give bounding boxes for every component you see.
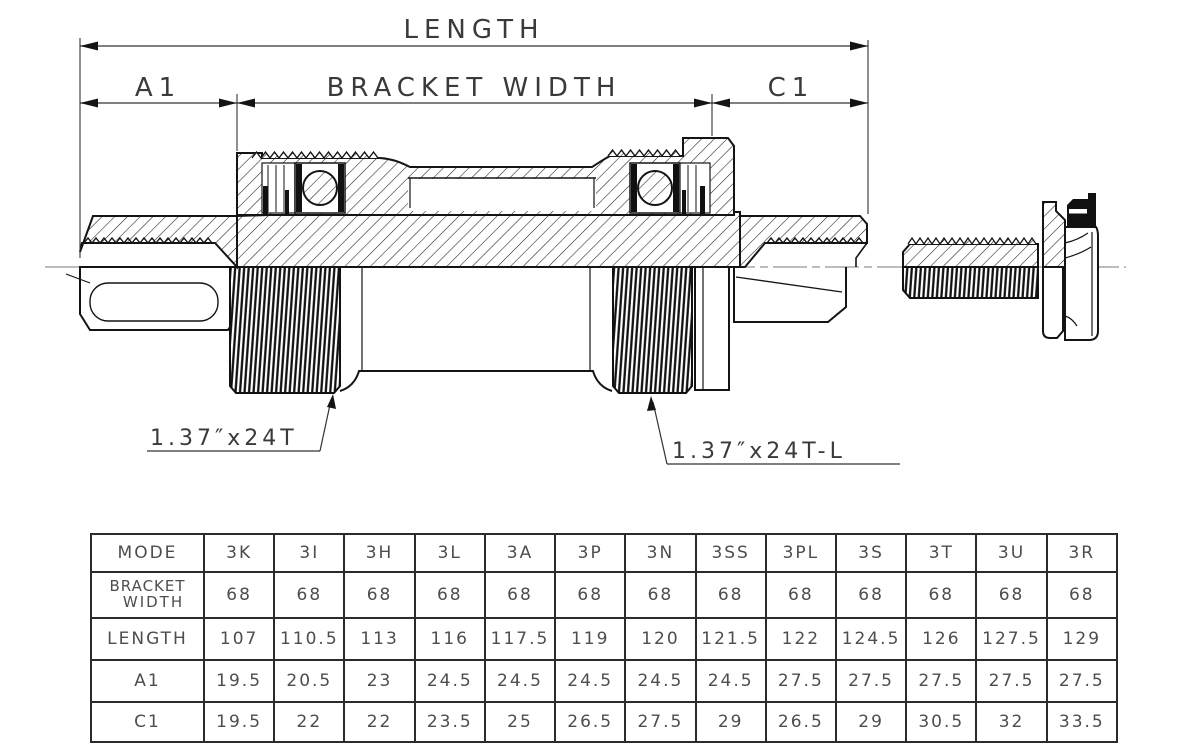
bracket-width-dim-label: BRACKET WIDTH xyxy=(327,73,622,103)
value-cell: 19.5 xyxy=(204,660,274,702)
right-cup-threads xyxy=(613,267,692,393)
header-cell: 3S xyxy=(836,534,906,572)
left-cup-threads xyxy=(230,267,340,393)
value-cell: 68 xyxy=(344,572,414,618)
value-cell: 26.5 xyxy=(555,702,625,742)
header-cell: 3U xyxy=(976,534,1046,572)
value-cell: 24.5 xyxy=(485,660,555,702)
row-label-line2: WIDTH xyxy=(104,595,203,611)
left-cup-crest xyxy=(252,152,378,158)
value-cell: 24.5 xyxy=(625,660,695,702)
table-row-bracket-width: BRACKET WIDTH 68 68 68 68 68 68 68 68 68… xyxy=(91,572,1117,618)
c1-dim-label: C1 xyxy=(768,73,815,103)
a1-dim-label: A1 xyxy=(135,73,181,103)
value-cell: 124.5 xyxy=(836,618,906,660)
thread-callout-left: 1.37″x24T xyxy=(147,394,336,451)
technical-drawing: LENGTH A1 BRACKET WIDTH C1 1.37″x24T 1.3… xyxy=(0,0,1200,522)
value-cell: 27.5 xyxy=(836,660,906,702)
value-cell: 113 xyxy=(344,618,414,660)
value-cell: 68 xyxy=(766,572,836,618)
bolt-head-section xyxy=(1043,202,1065,267)
value-cell: 68 xyxy=(555,572,625,618)
value-cell: 29 xyxy=(696,702,766,742)
length-dim-label: LENGTH xyxy=(403,15,544,45)
value-cell: 27.5 xyxy=(976,660,1046,702)
spindle-right-taper xyxy=(734,267,846,322)
value-cell: 27.5 xyxy=(1047,660,1117,702)
value-cell: 30.5 xyxy=(906,702,976,742)
value-cell: 129 xyxy=(1047,618,1117,660)
value-cell: 68 xyxy=(204,572,274,618)
value-cell: 68 xyxy=(415,572,485,618)
table-row-a1: A1 19.5 20.5 23 24.5 24.5 24.5 24.5 24.5… xyxy=(91,660,1117,702)
value-cell: 68 xyxy=(625,572,695,618)
row-label-cell: C1 xyxy=(91,702,204,742)
value-cell: 20.5 xyxy=(274,660,344,702)
header-cell: 3A xyxy=(485,534,555,572)
header-cell: 3PL xyxy=(766,534,836,572)
value-cell: 68 xyxy=(1047,572,1117,618)
header-cell: 3I xyxy=(274,534,344,572)
value-cell: 26.5 xyxy=(766,702,836,742)
table-row-c1: C1 19.5 22 22 23.5 25 26.5 27.5 29 26.5 … xyxy=(91,702,1117,742)
row-label-cell: BRACKET WIDTH xyxy=(91,572,204,618)
value-cell: 68 xyxy=(485,572,555,618)
header-cell: 3T xyxy=(906,534,976,572)
right-bearing xyxy=(630,163,710,214)
value-cell: 120 xyxy=(625,618,695,660)
right-bearing-ball xyxy=(638,171,672,205)
left-bearing xyxy=(262,163,345,214)
header-cell: 3P xyxy=(555,534,625,572)
header-cell: 3N xyxy=(625,534,695,572)
header-cell: 3L xyxy=(415,534,485,572)
value-cell: 32 xyxy=(976,702,1046,742)
thread-left-label: 1.37″x24T xyxy=(150,426,298,451)
bolt-head xyxy=(1065,227,1098,340)
value-cell: 23.5 xyxy=(415,702,485,742)
header-cell: 3SS xyxy=(696,534,766,572)
value-cell: 22 xyxy=(344,702,414,742)
value-cell: 27.5 xyxy=(625,702,695,742)
value-cell: 27.5 xyxy=(906,660,976,702)
value-cell: 68 xyxy=(274,572,344,618)
value-cell: 110.5 xyxy=(274,618,344,660)
value-cell: 33.5 xyxy=(1047,702,1117,742)
bolt-washer xyxy=(1043,267,1063,338)
value-cell: 122 xyxy=(766,618,836,660)
header-cell: 3K xyxy=(204,534,274,572)
value-cell: 23 xyxy=(344,660,414,702)
value-cell: 68 xyxy=(836,572,906,618)
right-cup-crest xyxy=(608,150,680,156)
value-cell: 24.5 xyxy=(415,660,485,702)
left-bearing-ball xyxy=(303,171,337,205)
value-cell: 29 xyxy=(836,702,906,742)
right-flange-bottom xyxy=(695,267,729,390)
value-cell: 116 xyxy=(415,618,485,660)
header-cell: 3R xyxy=(1047,534,1117,572)
row-label-cell: A1 xyxy=(91,660,204,702)
row-label-cell: MODE xyxy=(91,534,204,572)
value-cell: 107 xyxy=(204,618,274,660)
value-cell: 117.5 xyxy=(485,618,555,660)
value-cell: 127.5 xyxy=(976,618,1046,660)
value-cell: 126 xyxy=(906,618,976,660)
spindle-left-taper xyxy=(66,267,233,330)
spec-table: MODE 3K 3I 3H 3L 3A 3P 3N 3SS 3PL 3S 3T … xyxy=(90,533,1118,743)
value-cell: 68 xyxy=(696,572,766,618)
thread-callout-right: 1.37″x24T-L xyxy=(647,396,900,464)
row-label-cell: LENGTH xyxy=(91,618,204,660)
value-cell: 27.5 xyxy=(766,660,836,702)
value-cell: 24.5 xyxy=(696,660,766,702)
table-row-length: LENGTH 107 110.5 113 116 117.5 119 120 1… xyxy=(91,618,1117,660)
table-row-mode: MODE 3K 3I 3H 3L 3A 3P 3N 3SS 3PL 3S 3T … xyxy=(91,534,1117,572)
value-cell: 121.5 xyxy=(696,618,766,660)
value-cell: 24.5 xyxy=(555,660,625,702)
value-cell: 25 xyxy=(485,702,555,742)
value-cell: 68 xyxy=(976,572,1046,618)
value-cell: 19.5 xyxy=(204,702,274,742)
shell-tube-bottom xyxy=(340,268,612,391)
value-cell: 68 xyxy=(906,572,976,618)
bottom-bracket-spec-sheet: LENGTH A1 BRACKET WIDTH C1 1.37″x24T 1.3… xyxy=(0,0,1200,750)
header-cell: 3H xyxy=(344,534,414,572)
value-cell: 22 xyxy=(274,702,344,742)
crank-bolt xyxy=(903,193,1098,340)
value-cell: 119 xyxy=(555,618,625,660)
thread-right-label: 1.37″x24T-L xyxy=(672,439,846,464)
